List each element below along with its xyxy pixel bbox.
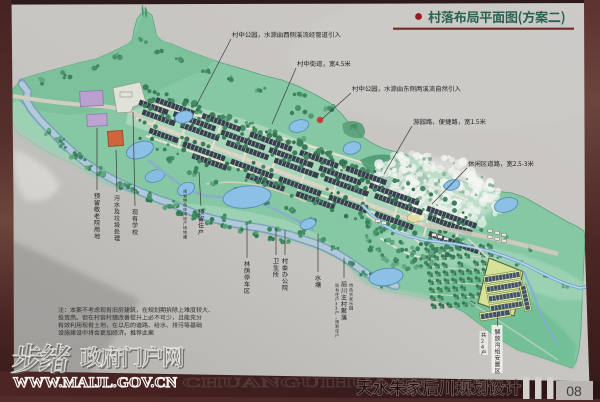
svg-text:WWW.MAIJL.GOV.CN: WWW.MAIJL.GOV.CN [13,375,177,391]
svg-text:08: 08 [566,383,582,399]
